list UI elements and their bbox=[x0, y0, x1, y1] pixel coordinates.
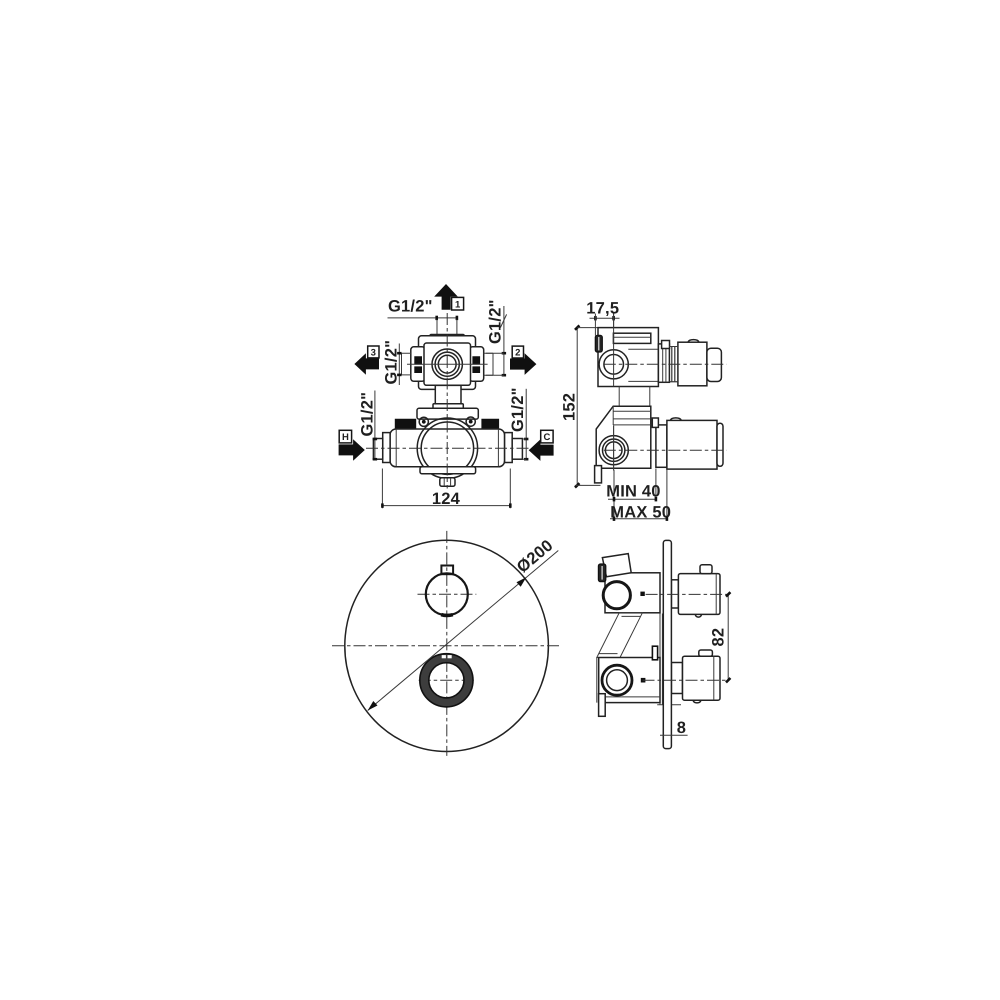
svg-text:3: 3 bbox=[371, 347, 376, 358]
svg-text:8: 8 bbox=[677, 719, 686, 737]
svg-text:G1/2": G1/2" bbox=[509, 387, 527, 432]
svg-text:1: 1 bbox=[455, 299, 461, 310]
svg-text:G1/2": G1/2" bbox=[383, 340, 401, 385]
svg-text:H: H bbox=[342, 432, 349, 443]
svg-text:C: C bbox=[543, 432, 550, 443]
svg-text:G1/2": G1/2" bbox=[486, 299, 504, 344]
svg-text:124: 124 bbox=[432, 490, 461, 508]
svg-text:82: 82 bbox=[710, 628, 728, 647]
svg-text:152: 152 bbox=[560, 393, 578, 421]
svg-text:2: 2 bbox=[515, 348, 520, 359]
svg-text:G1/2": G1/2" bbox=[388, 297, 433, 315]
svg-text:17,5: 17,5 bbox=[586, 299, 619, 317]
svg-text:G1/2": G1/2" bbox=[359, 392, 377, 437]
